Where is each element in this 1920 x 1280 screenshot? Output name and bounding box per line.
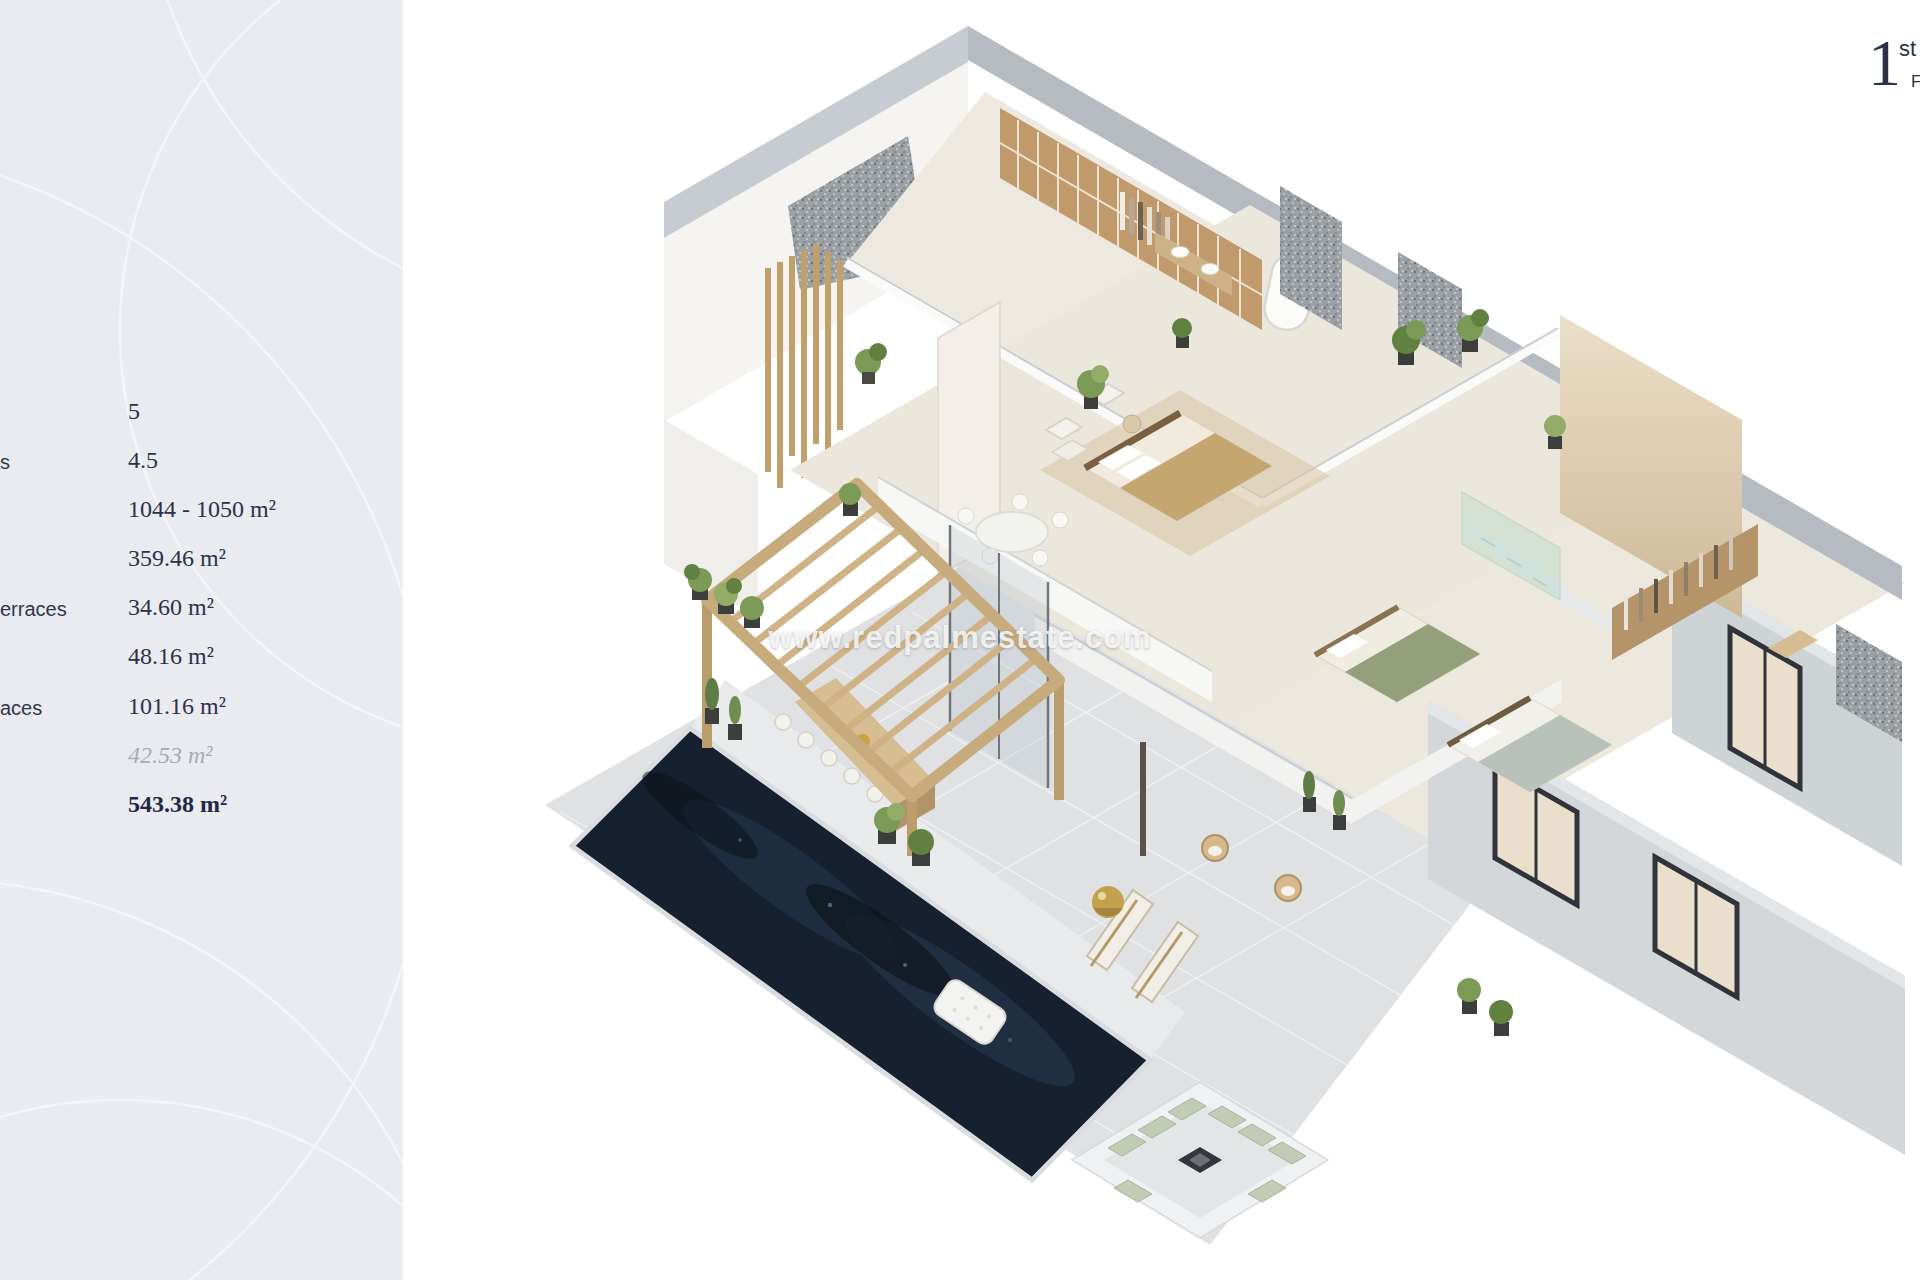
spec-value: 34.60 m² (128, 594, 214, 621)
spec-row: 1044 - 1050 m² (0, 496, 403, 526)
spec-row: aces 101.16 m² (0, 693, 403, 723)
spec-value: 4.5 (128, 447, 158, 474)
spec-row: 5 (0, 398, 403, 428)
spec-value: 543.38 m² (128, 791, 227, 818)
plant (1457, 978, 1513, 1036)
floor-ordinal: st (1899, 36, 1916, 62)
spec-value: 101.16 m² (128, 693, 226, 720)
spec-value: 48.16 m² (128, 643, 214, 670)
contour-pattern (0, 0, 403, 1280)
gold-ball-decor (1092, 886, 1124, 918)
brochure-page: 5 s 4.5 1044 - 1050 m² 359.46 m² erraces… (0, 0, 1920, 1280)
sidebar: 5 s 4.5 1044 - 1050 m² 359.46 m² erraces… (0, 0, 403, 1280)
spec-row: s 4.5 (0, 447, 403, 477)
floor-word: Floor (1911, 72, 1920, 92)
watermark: www.redpalmestate.com (768, 620, 1151, 656)
spec-row: 48.16 m² (0, 643, 403, 673)
spec-row: 42.53 m² (0, 742, 403, 772)
spec-value: 5 (128, 398, 140, 425)
spec-label: erraces (0, 598, 67, 621)
spec-row: 359.46 m² (0, 545, 403, 575)
floor-level-marker: 1 st Floor (1868, 30, 1920, 120)
spec-row: erraces 34.60 m² (0, 594, 403, 624)
spec-value: 359.46 m² (128, 545, 226, 572)
spec-label: aces (0, 697, 42, 720)
spec-label: s (0, 451, 10, 474)
spec-row: 543.38 m² (0, 791, 403, 821)
spec-value: 1044 - 1050 m² (128, 496, 276, 523)
floor-number: 1 (1868, 30, 1901, 96)
spec-value: 42.53 m² (128, 742, 213, 769)
